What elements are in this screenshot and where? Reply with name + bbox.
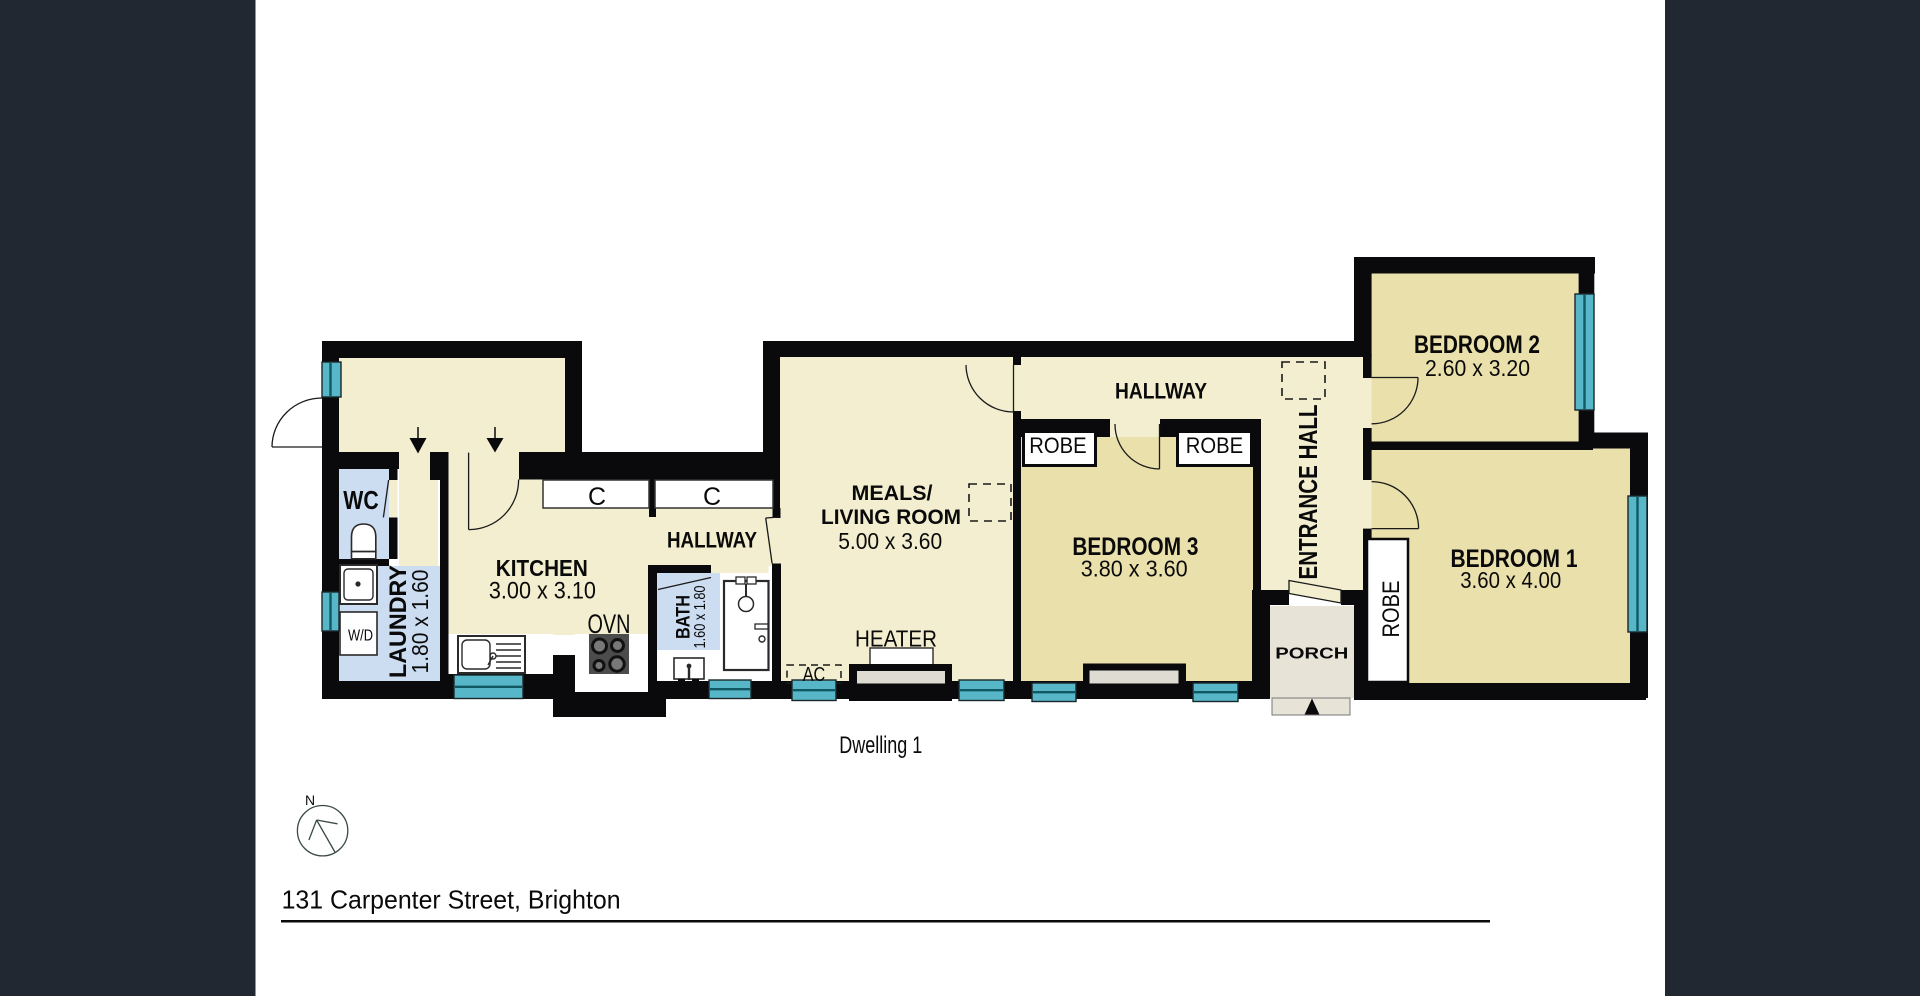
svg-text:1.60 x 1.80: 1.60 x 1.80 [692,585,709,648]
svg-text:ENTRANCE HALL: ENTRANCE HALL [1293,404,1323,579]
svg-text:3.60 x 4.00: 3.60 x 4.00 [1460,567,1561,593]
svg-text:OVN: OVN [588,609,631,639]
svg-text:ROBE: ROBE [1029,433,1086,458]
svg-text:W/D: W/D [348,628,373,645]
svg-text:HALLWAY: HALLWAY [1115,378,1207,403]
svg-text:131 Carpenter Street, Brighton: 131 Carpenter Street, Brighton [282,885,621,915]
svg-text:C: C [588,483,606,511]
svg-text:ROBE: ROBE [1186,433,1243,458]
svg-text:HEATER: HEATER [855,626,937,652]
svg-text:3.00 x 3.10: 3.00 x 3.10 [489,578,596,605]
svg-text:5.00 x 3.60: 5.00 x 3.60 [838,528,942,554]
svg-text:C: C [703,483,721,511]
svg-text:WC: WC [343,485,379,515]
svg-text:AC: AC [803,664,826,686]
svg-text:HALLWAY: HALLWAY [667,528,757,553]
svg-text:LIVING ROOM: LIVING ROOM [821,505,961,529]
svg-text:N: N [305,792,315,808]
svg-text:MEALS/: MEALS/ [852,481,933,505]
svg-text:PORCH: PORCH [1275,646,1348,663]
svg-text:2.60 x 3.20: 2.60 x 3.20 [1425,355,1530,381]
svg-text:Dwelling 1: Dwelling 1 [839,732,922,759]
svg-text:1.80 x 1.60: 1.80 x 1.60 [407,570,433,674]
svg-text:3.80 x 3.60: 3.80 x 3.60 [1081,556,1188,582]
svg-text:ROBE: ROBE [1378,581,1405,638]
